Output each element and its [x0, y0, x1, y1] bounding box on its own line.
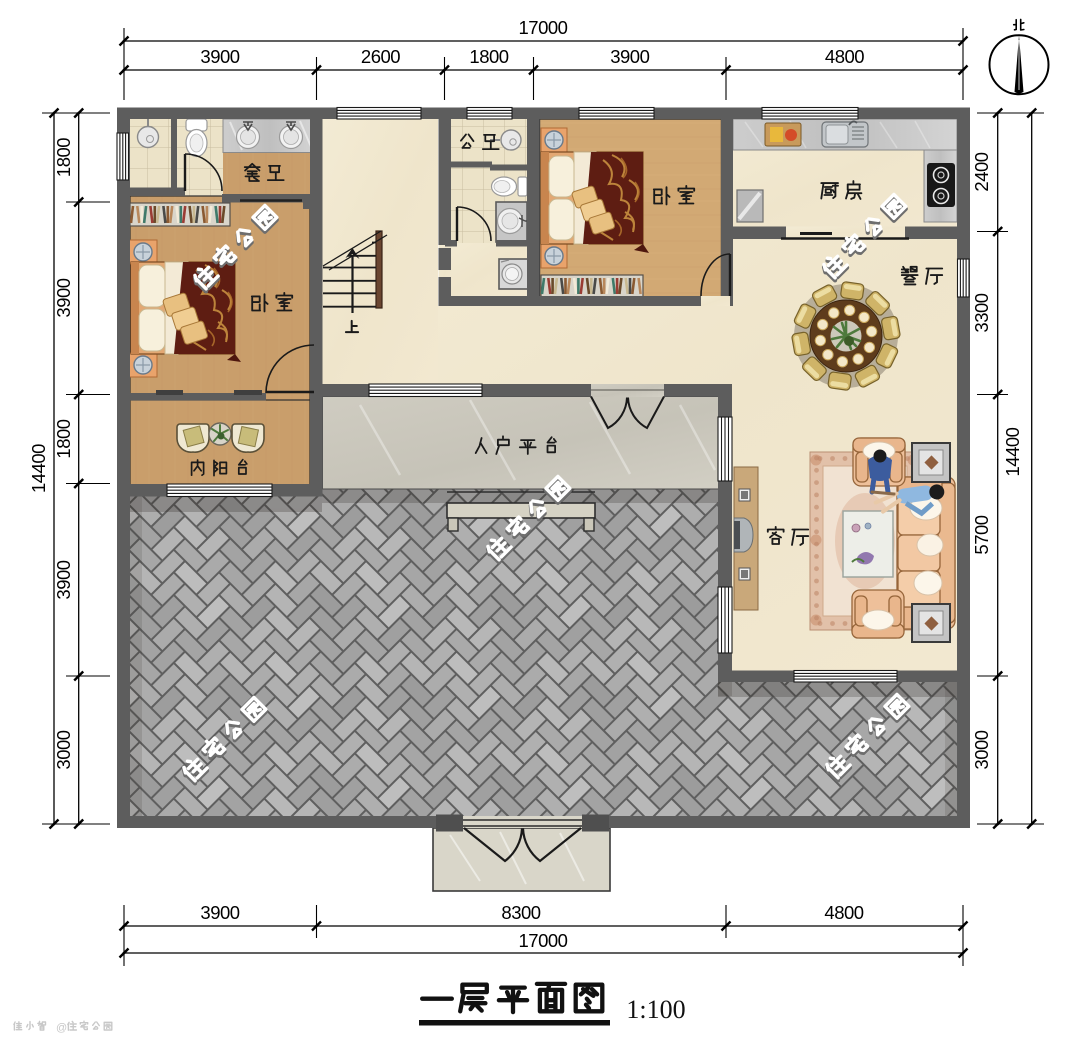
svg-text:1:100: 1:100: [626, 995, 685, 1024]
svg-text:3000: 3000: [971, 730, 992, 769]
svg-text:5700: 5700: [971, 515, 992, 554]
svg-text:14400: 14400: [1002, 427, 1023, 476]
svg-text:1800: 1800: [53, 419, 74, 458]
svg-text:@: @: [56, 1022, 67, 1034]
svg-text:3900: 3900: [53, 560, 74, 599]
svg-text:2600: 2600: [361, 46, 400, 67]
svg-text:3900: 3900: [53, 278, 74, 317]
svg-text:14400: 14400: [28, 444, 49, 493]
svg-text:1800: 1800: [53, 138, 74, 177]
svg-text:17000: 17000: [519, 17, 568, 38]
svg-text:3300: 3300: [971, 293, 992, 332]
svg-text:1800: 1800: [469, 46, 508, 67]
svg-text:4800: 4800: [824, 902, 863, 923]
svg-text:8300: 8300: [501, 902, 540, 923]
svg-text:3900: 3900: [610, 46, 649, 67]
svg-text:3900: 3900: [200, 902, 239, 923]
svg-text:2400: 2400: [971, 152, 992, 191]
svg-text:3000: 3000: [53, 730, 74, 769]
svg-text:17000: 17000: [519, 930, 568, 951]
svg-text:4800: 4800: [825, 46, 864, 67]
svg-text:3900: 3900: [200, 46, 239, 67]
